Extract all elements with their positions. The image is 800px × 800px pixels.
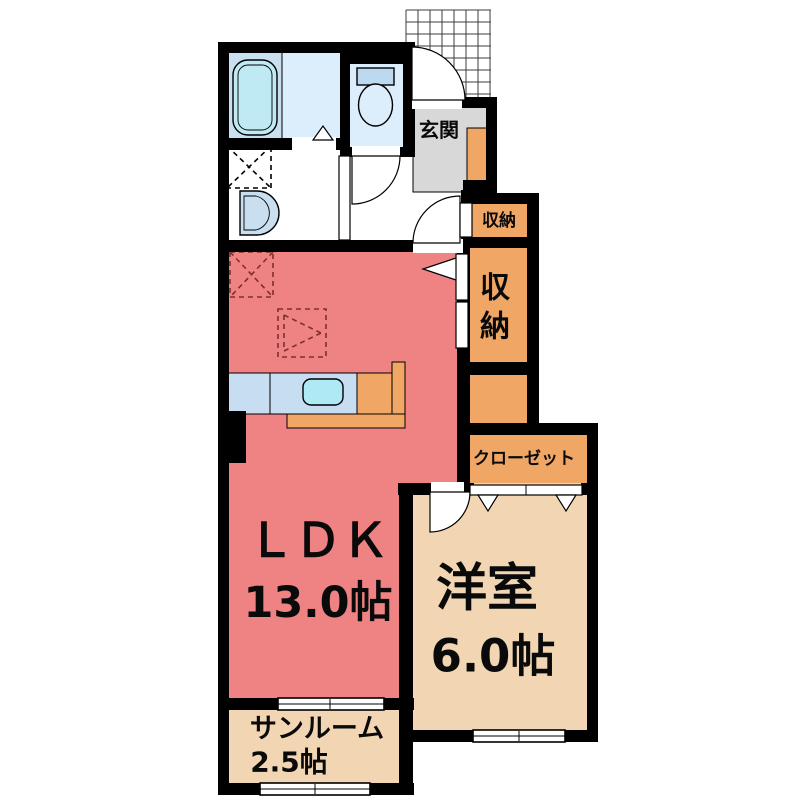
entrance-label: 玄関 (419, 118, 459, 142)
shoe-cabinet (467, 128, 488, 182)
ldk-floor-upper (228, 243, 459, 495)
window-sunroom-south (260, 783, 370, 795)
washroom-sliding-door (339, 156, 350, 240)
sunroom-size-label: 2.5帖 (250, 746, 328, 779)
main-storage-door-upper (456, 254, 468, 300)
main-storage-label-2: 納 (480, 310, 510, 345)
main-storage-label-1: 収 (480, 271, 511, 306)
closet-label: クローゼット (473, 448, 575, 469)
hall-storage-label: 収納 (482, 210, 516, 231)
bathtub (233, 60, 277, 135)
floorplan-page: 玄関 収納 収 納 クローゼット ＬＤＫ 13.0帖 洋室 6.0帖 サンルーム… (0, 0, 800, 800)
entrance-door-arc (412, 47, 465, 100)
western-room-size-label: 6.0帖 (431, 630, 556, 683)
washer-space-marker (227, 146, 271, 188)
ldk-label: ＬＤＫ (248, 514, 389, 569)
hall-storage-door (460, 203, 472, 237)
toilet-fixture (357, 68, 394, 126)
western-room-label: 洋室 (436, 560, 538, 619)
window-western-south (473, 730, 565, 742)
sunroom-label: サンルーム (250, 714, 384, 745)
wash-basin (240, 191, 279, 235)
window-ldk-sunroom (278, 698, 384, 710)
hall-ldk-door-arc (413, 196, 460, 243)
bathroom-floor (282, 53, 342, 138)
ldk-size-label: 13.0帖 (243, 578, 392, 628)
toilet-door-arc (352, 156, 400, 204)
kitchen-sink (303, 379, 343, 405)
main-storage-door-lower (456, 302, 468, 348)
floorplan-svg: 玄関 収納 収 納 クローゼット ＬＤＫ 13.0帖 洋室 6.0帖 サンルーム… (0, 0, 800, 800)
